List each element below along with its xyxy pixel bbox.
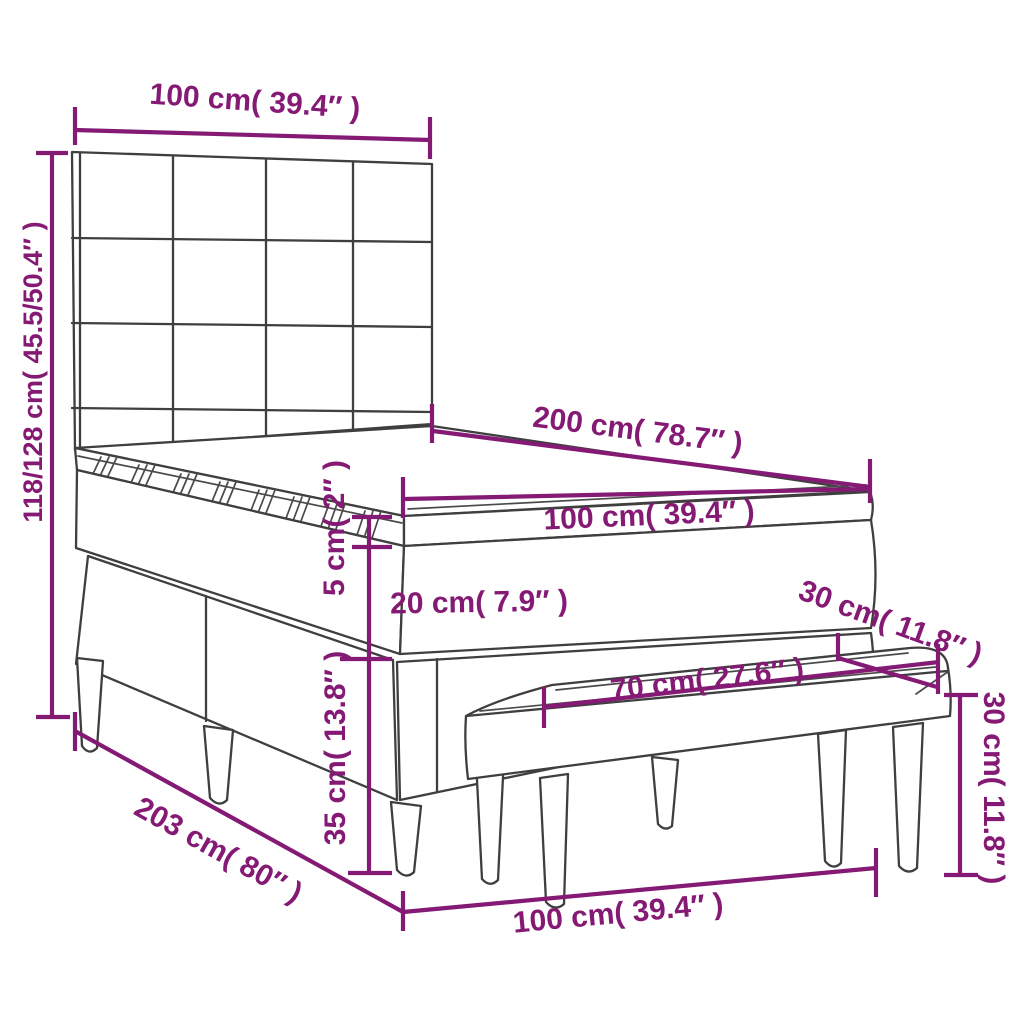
dim-mattress-thickness: 20 cm( 7.9″ ) [390,584,568,620]
dim-headboard-width-label: 100 cm( 39.4″ ) [148,78,361,126]
bench-leg [540,774,568,908]
dim-base-height-label: 35 cm( 13.8″ ) [319,651,352,845]
dim-overall-height: 118/128 cm( 45.5/50.4″ ) [18,153,70,717]
bench-leg [893,723,923,872]
bench-leg [818,730,846,867]
bed-leg [391,802,421,876]
bed-leg [204,726,233,804]
headboard [72,152,432,450]
dim-overall-height-label: 118/128 cm( 45.5/50.4″ ) [18,221,48,522]
bed-dimension-diagram: 100 cm( 39.4″ ) 118/128 cm( 45.5/50.4″ )… [0,0,1024,1024]
diagram-canvas: 100 cm( 39.4″ ) 118/128 cm( 45.5/50.4″ )… [0,0,1024,1024]
dim-bench-length-label: 100 cm( 39.4″ ) [511,887,724,939]
dim-bench-height-label: 30 cm( 11.8″ ) [977,692,1010,885]
dim-bench-length: 100 cm( 39.4″ ) [403,848,876,940]
dim-bench-height: 30 cm( 11.8″ ) [944,692,1010,885]
dim-topper-thickness-label: 5 cm( 2″ ) [318,460,351,596]
bed-leg [652,757,678,829]
dim-headboard-width: 100 cm( 39.4″ ) [75,78,430,159]
dim-mattress-thickness-label: 20 cm( 7.9″ ) [390,584,568,620]
